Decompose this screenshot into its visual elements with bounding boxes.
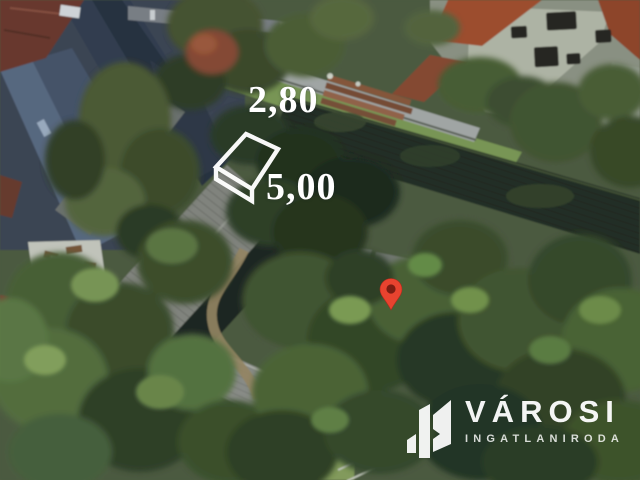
watermark-subtitle-text: INGATLANIRODA	[465, 433, 624, 445]
varosi-logo-icon	[404, 396, 452, 462]
width-dimension-label: 2,80	[248, 81, 319, 119]
watermark-text-block: VÁROSI INGATLANIRODA	[465, 396, 624, 445]
aerial-listing-photo: 2,80 5,00 VÁROSI INGATLANIRODA	[0, 0, 640, 480]
length-dimension-label: 5,00	[266, 168, 337, 206]
varosi-watermark: VÁROSI INGATLANIRODA	[404, 396, 624, 462]
watermark-brand-text: VÁROSI	[465, 396, 624, 427]
